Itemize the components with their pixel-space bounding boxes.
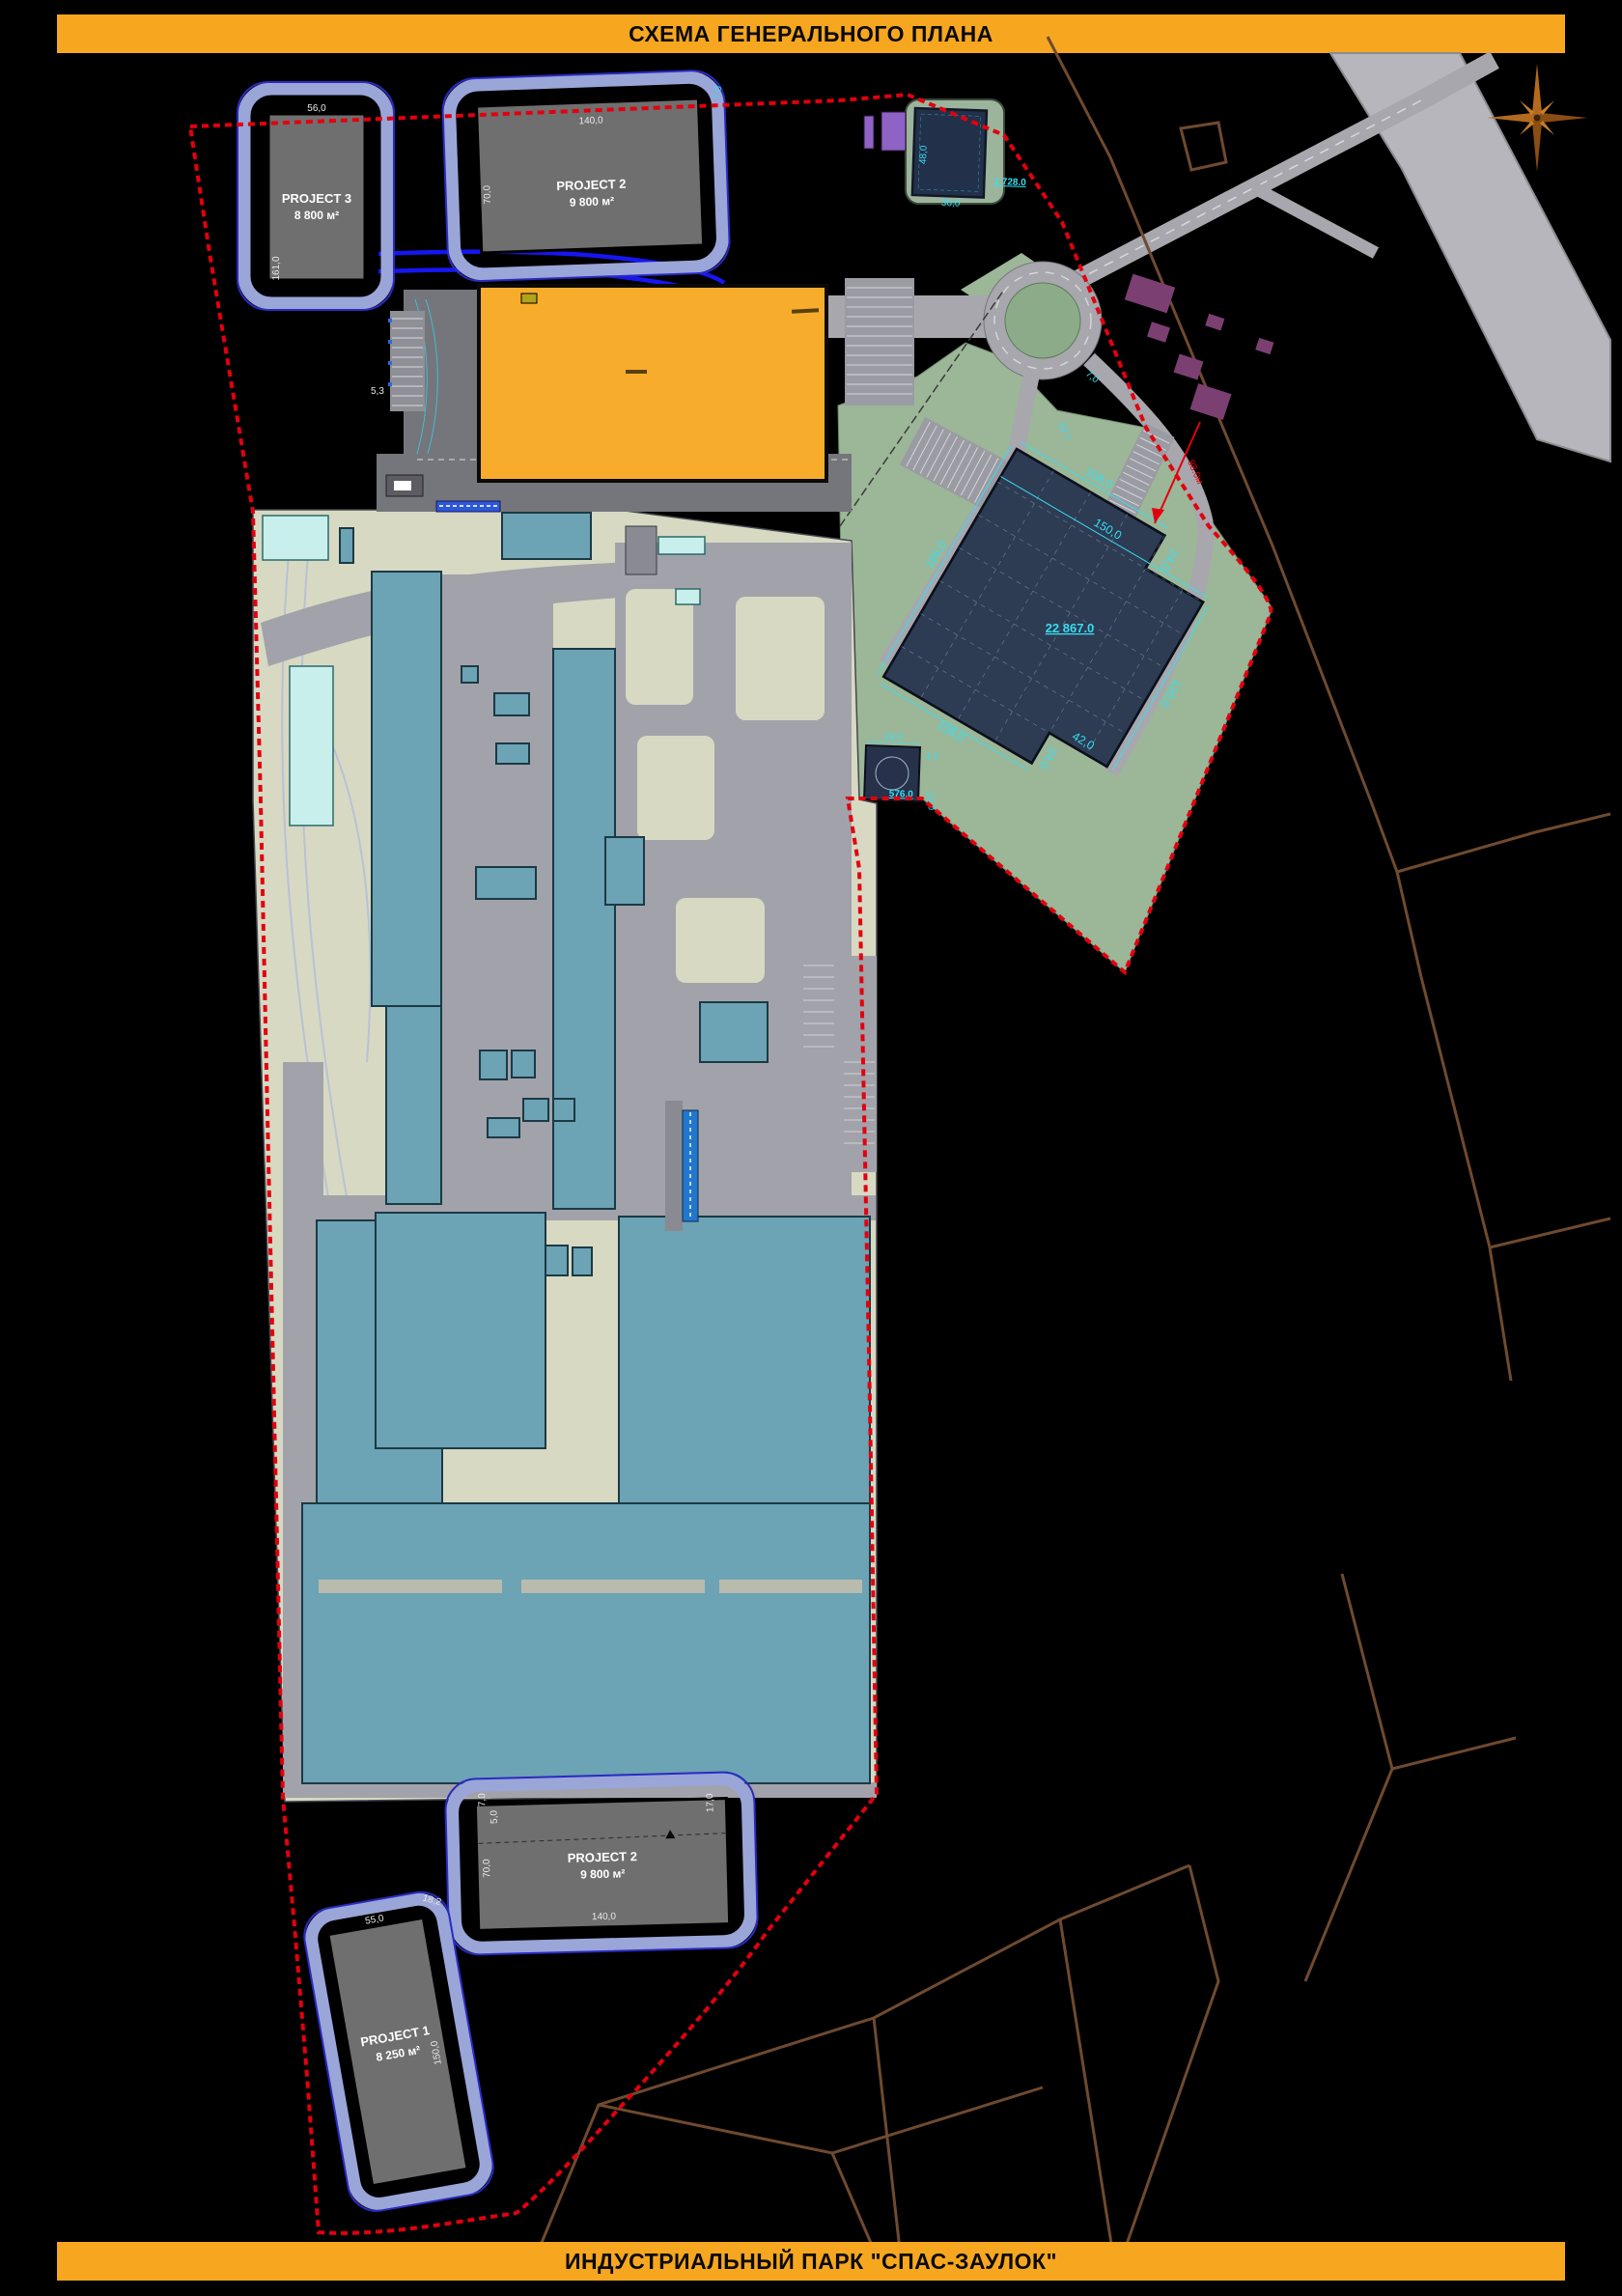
project2-top-dim-70: 7,0 bbox=[712, 85, 724, 100]
project3-area: 8 800 м² bbox=[294, 209, 339, 222]
project2-bottom-building bbox=[475, 1799, 729, 1931]
roundabout-island bbox=[1005, 283, 1080, 358]
village-buildings bbox=[1125, 274, 1274, 420]
parking-area-west bbox=[845, 278, 914, 406]
masterplan-drawing: 56,0 161,0 PROJECT 3 8 800 м² 140,0 70,0… bbox=[0, 0, 1622, 2296]
checkpoint-d3: 10.0 bbox=[923, 791, 937, 811]
project2-bottom-dim-h: 70,0 bbox=[482, 1859, 493, 1878]
warehouse-area-label: 22 867.0 bbox=[1046, 621, 1095, 635]
bottom-banner: ИНДУСТРИАЛЬНЫЙ ПАРК "СПАС-ЗАУЛОК" bbox=[57, 2242, 1565, 2281]
existing-building-group: 48,0 36,0 1 728.0 bbox=[911, 108, 1028, 211]
project2-top-dim-w: 140,0 bbox=[578, 115, 603, 126]
project3-group: 56,0 161,0 PROJECT 3 8 800 м² bbox=[238, 82, 394, 310]
project2-bottom-dim-w: 140,0 bbox=[592, 1912, 617, 1923]
checkpoint-d2: 4.2 bbox=[925, 751, 939, 762]
project2-top-name: PROJECT 2 bbox=[556, 177, 627, 194]
project3-name: PROJECT 3 bbox=[282, 191, 351, 206]
dock-leveler-icon bbox=[521, 294, 537, 303]
project3-dim-w: 56,0 bbox=[307, 103, 326, 114]
project3-dim-h: 161,0 bbox=[271, 256, 282, 280]
project2-top-area: 9 800 м² bbox=[570, 194, 615, 210]
project2-bottom-name: PROJECT 2 bbox=[568, 1849, 638, 1865]
project2-bottom-dim-170: 17,0 bbox=[705, 1793, 716, 1812]
existing-dim-h: 48,0 bbox=[918, 145, 930, 164]
dock-blue-strip bbox=[683, 1110, 698, 1221]
project2-bottom-area: 9 800 м² bbox=[580, 1866, 626, 1881]
park-title: ИНДУСТРИАЛЬНЫЙ ПАРК "СПАС-ЗАУЛОК" bbox=[565, 2249, 1057, 2275]
existing-area: 1 728.0 bbox=[993, 177, 1026, 188]
dim-5-3: 5,3 bbox=[371, 386, 384, 397]
orange-roof-note bbox=[626, 370, 647, 374]
gray-shed bbox=[626, 526, 657, 574]
checkpoint-dim: 24.0 bbox=[883, 732, 903, 743]
masterplan-page: СХЕМА ГЕНЕРАЛЬНОГО ПЛАНА bbox=[0, 0, 1622, 2296]
demolition-shed bbox=[386, 475, 423, 496]
project2-bottom-dim-70b: 7,0 bbox=[477, 1793, 488, 1807]
utility-purple-2 bbox=[881, 112, 906, 151]
orange-building-group bbox=[479, 286, 826, 481]
orange-building bbox=[479, 286, 826, 481]
dock-gray-band bbox=[665, 1101, 683, 1231]
project2-bottom-dim-50: 5,0 bbox=[489, 1809, 500, 1824]
building-slits bbox=[319, 1580, 862, 1593]
project2-top-group: 140,0 70,0 PROJECT 2 9 800 м² 7,0 bbox=[441, 70, 731, 282]
project2-top-dim-h: 70,0 bbox=[482, 184, 493, 204]
rail-platform bbox=[436, 501, 500, 512]
existing-dim-w: 36,0 bbox=[941, 198, 961, 210]
apron-parking bbox=[388, 311, 425, 411]
utility-purple-1 bbox=[864, 116, 874, 149]
road-fork bbox=[1255, 188, 1376, 253]
